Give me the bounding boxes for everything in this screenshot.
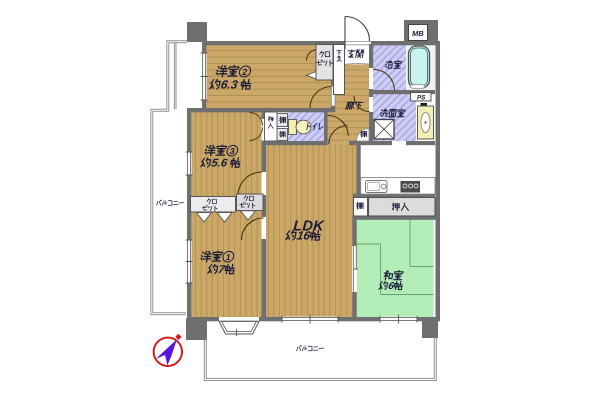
svg-text:5.6: 5.6 — [210, 158, 228, 170]
svg-text:MB: MB — [412, 29, 424, 38]
svg-text:16: 16 — [296, 229, 312, 243]
svg-text:PS: PS — [417, 95, 426, 102]
svg-text:6.3: 6.3 — [220, 78, 239, 92]
